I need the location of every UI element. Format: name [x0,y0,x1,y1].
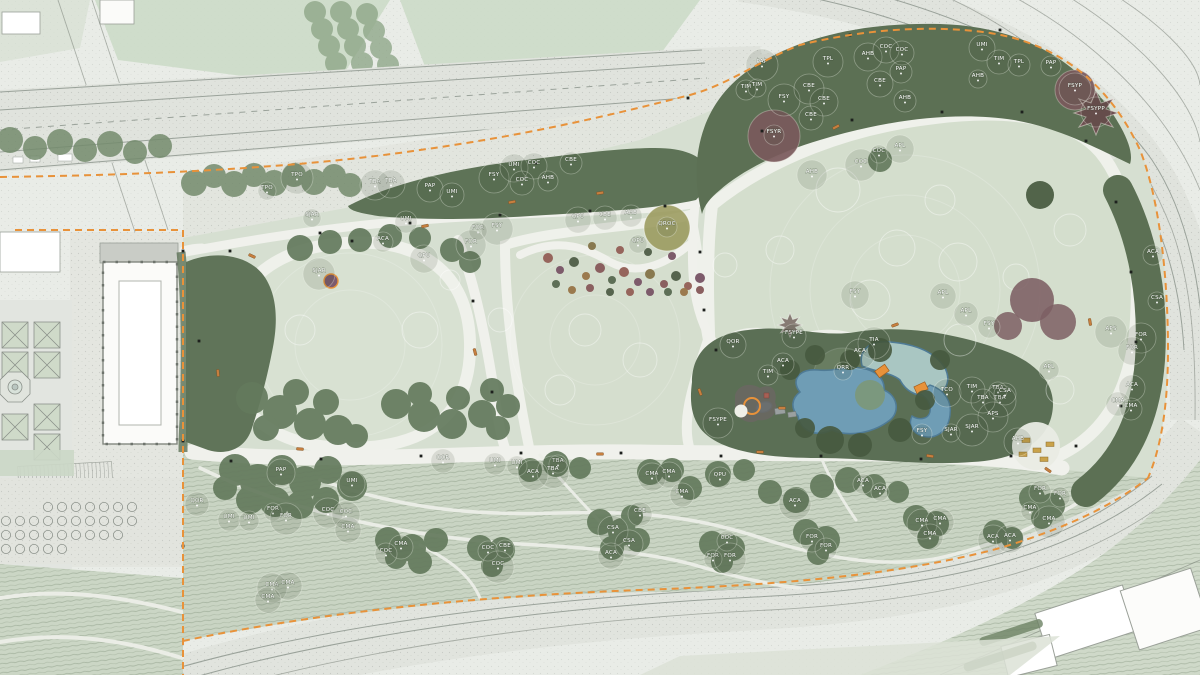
tree-label-sjar: SJAR [303,258,335,290]
lamp-post [589,210,592,213]
svg-text:UMI: UMI [489,458,500,464]
svg-text:QPU: QPU [572,214,584,220]
svg-text:FSYPP: FSYPP [1087,106,1105,112]
masterplan-canvas: TPOTPOTBATBAPAPUMIUMIACASJARSJARFSYUMICO… [0,0,1200,675]
bench [757,451,764,454]
tree-label-cma: CMA [335,517,361,543]
svg-text:CBE: CBE [499,543,511,549]
tree-label-apl: APL [1039,360,1059,380]
tree-label-for: FOR [456,230,486,260]
tree-label-tpo: TPO [281,162,313,194]
svg-text:FOR: FOR [1034,486,1046,492]
svg-text:TPO: TPO [260,185,273,191]
lamp-post [230,460,233,463]
svg-text:APL: APL [895,143,907,149]
svg-text:APL: APL [961,308,973,314]
tree-label-aca: ACA [779,488,811,520]
tree-label-for: FOR [815,538,837,560]
tree-label-aca: ACA [996,525,1024,553]
svg-text:APS: APS [987,411,999,417]
svg-text:AHB: AHB [862,51,874,57]
svg-text:TIM: TIM [993,56,1005,62]
tree-label-fsype: FSYPE [703,408,733,438]
svg-text:QPU: QPU [418,253,430,259]
svg-text:AHB: AHB [806,169,818,175]
tree-label-fsy: FSY [841,281,869,309]
lamp-post [182,250,185,253]
svg-text:FOR: FOR [1126,345,1138,351]
svg-text:CMA: CMA [281,580,294,586]
svg-text:ACA: ACA [874,486,886,492]
svg-text:CMA: CMA [1124,403,1137,409]
tree-label-coc: COC [482,551,514,583]
svg-text:PAP: PAP [1046,60,1057,66]
svg-text:APS: APS [1105,326,1117,332]
tree-label-ahb: AHB [797,160,827,190]
svg-text:FSYR: FSYR [767,129,782,135]
lamp-post [1021,111,1024,114]
tree-label-ahb: AHB [894,90,916,112]
tree-label-for: FOR [1118,337,1146,365]
tree-label-pap: PAP [267,459,295,487]
tree-label-sjar: SJAR [956,414,988,446]
tree-label-cma: CMA [1120,398,1142,420]
tree-label-tco: TCO [933,379,961,407]
tree-label-cma: CMA [255,587,281,613]
svg-text:TBA: TBA [546,466,559,472]
lamp-post [999,29,1002,32]
tree-label-cma: CMA [1033,506,1065,538]
svg-text:ACA: ACA [527,469,539,475]
lamp-post [229,250,232,253]
tree-label-umi: UMI [339,471,365,497]
lamp-post [320,458,323,461]
tree-label-qor: QOR [431,449,455,473]
svg-text:TIA: TIA [868,337,879,343]
svg-text:CSA: CSA [623,538,635,544]
svg-text:COC: COC [873,148,886,154]
svg-text:COC: COC [380,548,393,554]
svg-text:COC: COC [896,47,909,53]
tree-label-umi: UMI [239,511,259,531]
sand-circle [735,405,748,418]
svg-text:QRR: QRR [837,365,850,371]
lamp-post [941,111,944,114]
tree-label-tpo: TPO [258,182,276,200]
tree-label-fsy: FSY [978,316,1000,338]
lamp-post [351,240,354,243]
tree-label-cbe: CBE [628,502,652,526]
svg-text:CSA: CSA [999,388,1011,394]
tree-label-umi: UMI [218,509,240,531]
svg-text:TCO: TCO [940,387,953,393]
svg-text:PAP: PAP [276,467,287,473]
lamp-post [687,97,690,100]
bench [296,447,303,450]
svg-text:AHB: AHB [1012,436,1024,442]
svg-text:TBA: TBA [976,395,989,401]
lamp-post [720,455,723,458]
svg-text:UMI: UMI [508,162,519,168]
tree-label-coc: COC [375,543,397,565]
svg-text:QOR: QOR [436,455,449,461]
svg-text:CMA: CMA [261,594,274,600]
tree-label-apl: APL [886,135,914,163]
lamp-post [520,452,523,455]
orangery-building [103,262,177,444]
tree-label-cbe: CBE [799,106,823,130]
tree-label-coc: COC [845,149,877,181]
tree-label-coc: COC [510,171,534,195]
svg-text:QOR: QOR [726,339,739,345]
svg-text:COC: COC [340,509,353,515]
svg-text:FOR: FOR [1054,491,1066,497]
svg-text:SJAR: SJAR [312,268,326,274]
svg-text:PAP: PAP [896,66,907,72]
svg-text:TPL: TPL [822,56,834,62]
tree-label-for: FOR [1050,487,1070,507]
svg-text:TPL: TPL [1013,59,1025,65]
tree-label-sjar: SJAR [303,209,321,227]
tree-label-aca: ACA [373,232,393,252]
svg-text:FSYPE: FSYPE [709,417,727,423]
svg-text:SJAR: SJAR [305,212,319,218]
svg-text:FSY: FSY [492,223,503,229]
tree-label-apl: APL [930,283,956,309]
tree-label-pap: PAP [746,49,778,81]
tree-label-aca: ACA [853,474,873,494]
svg-text:FSY: FSY [779,94,790,100]
svg-text:TBA: TBA [384,178,397,184]
lamp-post [491,391,494,394]
bench [216,369,219,376]
tree-label-umi: UMI [395,211,417,233]
tree-label-qroc: QROC [657,217,677,237]
svg-text:COC: COC [528,160,541,166]
tree-label-tpl: TPL [813,47,843,77]
svg-text:SJAR: SJAR [965,424,979,430]
svg-text:FOR: FOR [465,239,477,245]
svg-text:FOR: FOR [724,553,736,559]
tree-label-qor: QOR [720,332,746,358]
lamp-post [1085,140,1088,143]
tree-label-aca: ACA [518,460,548,490]
tree-label-fsy: FSY [481,213,513,245]
tree-label-fsype: FSYPE [782,324,806,348]
lamp-post [761,130,764,133]
svg-text:UMI: UMI [243,515,254,521]
lamp-post [1130,271,1133,274]
tree-label-fsyr: FSYR [764,125,784,145]
svg-text:TPO: TPO [290,172,303,178]
tree-label-umi: UMI [440,183,464,207]
lamp-post [664,205,667,208]
svg-text:TIM: TIM [966,384,978,390]
tree-label-pap: PAP [1041,56,1061,76]
svg-text:AHB: AHB [899,95,911,101]
svg-text:QROC: QROC [658,221,675,227]
lamp-post [319,232,322,235]
svg-text:UMI: UMI [511,460,522,466]
svg-text:FOR: FOR [1135,332,1147,338]
svg-text:FSYP: FSYP [1068,83,1083,89]
svg-text:AHB: AHB [625,210,637,216]
svg-text:FSY: FSY [489,172,500,178]
lamp-post [198,340,201,343]
lamp-post [1115,201,1118,204]
tree-label-ahb: AHB [620,205,642,227]
svg-text:COC: COC [516,177,529,183]
svg-text:CSA: CSA [607,525,619,531]
tree-label-cbe: CBE [560,152,582,174]
svg-text:CMA: CMA [923,531,936,537]
lamp-post [620,452,623,455]
svg-text:ACA: ACA [1147,249,1159,255]
tree-label-cma: CMA [917,524,943,550]
svg-text:CMA: CMA [662,469,675,475]
svg-text:CBE: CBE [565,157,577,163]
tree-label-aca: ACA [598,543,624,569]
svg-text:CMA: CMA [675,489,688,495]
lamp-post [1075,445,1078,448]
svg-text:ACA: ACA [1126,382,1138,388]
svg-text:CMA: CMA [1023,505,1036,511]
tree-label-ahb: AHB [538,171,558,191]
tree-label-qpu: QPU [565,207,591,233]
tree-label-aca: ACA [1143,245,1163,265]
svg-text:UMI: UMI [346,478,357,484]
svg-text:CMA: CMA [933,516,946,522]
tree-label-tim: TIM [758,365,778,385]
lamp-post [920,458,923,461]
tree-label-qpu: QPU [629,235,647,253]
tree-label-pap: PAP [417,176,443,202]
tree-label-tba: TBA [971,389,995,413]
tree-label-aca: ACA [845,339,875,369]
tree-label-qpu: QPU [410,245,438,273]
svg-text:COC: COC [855,159,868,165]
svg-text:CBE: CBE [599,212,611,218]
tree-label-aca: ACA [871,483,889,501]
svg-text:CBE: CBE [634,508,646,514]
svg-text:CMA: CMA [341,524,354,530]
svg-text:FOR: FOR [280,513,292,519]
svg-text:ACA: ACA [777,358,789,364]
svg-text:PAP: PAP [425,183,436,189]
svg-text:QPU: QPU [632,238,644,244]
svg-text:TIM: TIM [762,369,774,375]
lamp-post [715,349,718,352]
tree-label-qor: QOR [185,492,209,516]
svg-text:QPU: QPU [714,472,726,478]
svg-text:FSY: FSY [984,321,995,327]
tree-label-for: FOR [1029,481,1051,503]
tree-label-tba: TBA [377,170,405,198]
svg-text:CMA: CMA [394,541,407,547]
lamp-post [703,309,706,312]
svg-text:AHB: AHB [972,73,984,79]
svg-text:FSYPE: FSYPE [785,330,803,336]
tree-label-csa: CSA [1148,292,1166,310]
svg-text:COC: COC [721,535,734,541]
terrace-bosque [0,478,183,675]
svg-text:ACA: ACA [789,498,801,504]
tree-label-cbe: CBE [867,71,893,97]
bench [597,453,604,456]
svg-text:ACA: ACA [857,478,869,484]
site-plan: TPOTPOTBATBAPAPUMIUMIACASJARSJARFSYUMICO… [0,0,1200,675]
svg-text:UMI: UMI [446,189,457,195]
svg-text:TIM: TIM [751,82,763,88]
svg-text:UMI: UMI [223,514,234,520]
svg-text:CBE: CBE [805,112,817,118]
svg-text:APL: APL [938,290,950,296]
svg-text:APL: APL [1044,364,1056,370]
svg-text:UMI: UMI [976,42,987,48]
svg-text:ACA: ACA [1004,533,1016,539]
svg-text:FSY: FSY [850,289,861,295]
tree-label-ahb: AHB [1004,428,1032,456]
tree-label-cbe: CBE [593,206,617,230]
svg-text:ACA: ACA [605,550,617,556]
svg-text:FSY: FSY [917,428,928,434]
svg-text:AHB: AHB [542,175,554,181]
svg-text:QOR: QOR [190,498,203,504]
tree-label-fsy: FSY [912,424,932,444]
svg-text:CBE: CBE [803,83,815,89]
svg-text:ACA: ACA [377,236,389,242]
bench [779,407,786,410]
tree-label-apl: APL [954,302,978,326]
svg-text:COC: COC [482,545,495,551]
tree-label-ahb: AHB [969,70,987,88]
tree-label-csa: CSA [994,383,1016,405]
lamp-post [699,251,702,254]
svg-text:CBE: CBE [818,96,830,102]
svg-text:CMA: CMA [1042,516,1055,522]
svg-text:FOR: FOR [806,534,818,540]
tree-label-qpu: QPU [709,467,731,489]
tree-label-pap: PAP [890,61,912,83]
tree-label-fsypp: FSYPP [1081,97,1111,127]
tree-label-for: FOR [714,543,746,575]
lamp-post [851,119,854,122]
play-house [764,393,769,398]
svg-text:UMI: UMI [400,216,411,222]
svg-text:ACA: ACA [854,348,866,354]
tree-label-for: FOR [270,503,302,535]
lamp-post [472,300,475,303]
svg-text:CBE: CBE [874,78,886,84]
tree-label-cma: CMA [670,483,694,507]
lamp-post [420,455,423,458]
tree-label-umi: UMI [484,453,506,475]
tree-label-tim: TIM [748,79,766,97]
tree-label-tpl: TPL [1008,54,1030,76]
svg-text:FOR: FOR [820,543,832,549]
tree-label-tim: TIM [987,50,1011,74]
lamp-post [820,455,823,458]
svg-text:CSA: CSA [1151,295,1163,301]
svg-text:COC: COC [492,561,505,567]
